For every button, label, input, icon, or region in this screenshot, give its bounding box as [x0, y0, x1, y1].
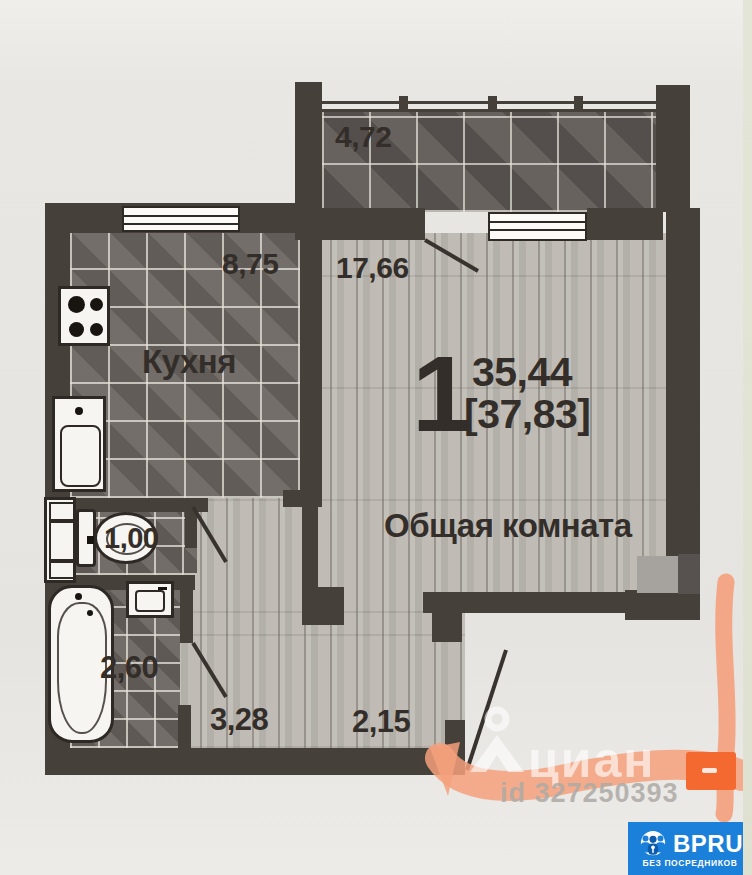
badge-brand-text: BPRU — [673, 832, 743, 856]
photo-edge-strip — [743, 0, 752, 875]
badge-tagline-text: БЕЗ ПОСРЕДНИКОВ — [643, 859, 738, 868]
map-pin-icon — [470, 735, 524, 772]
watermark-listing-id: id 327250393 — [500, 780, 679, 807]
people-key-icon — [637, 830, 669, 858]
map-pin-icon — [488, 710, 506, 728]
floorplan-photo: 4,72 8,75 Кухня 17,66 1 35,44 [37,83] Об… — [0, 0, 752, 875]
bpru-badge: BPRU БЕЗ ПОСРЕДНИКОВ — [628, 822, 752, 875]
